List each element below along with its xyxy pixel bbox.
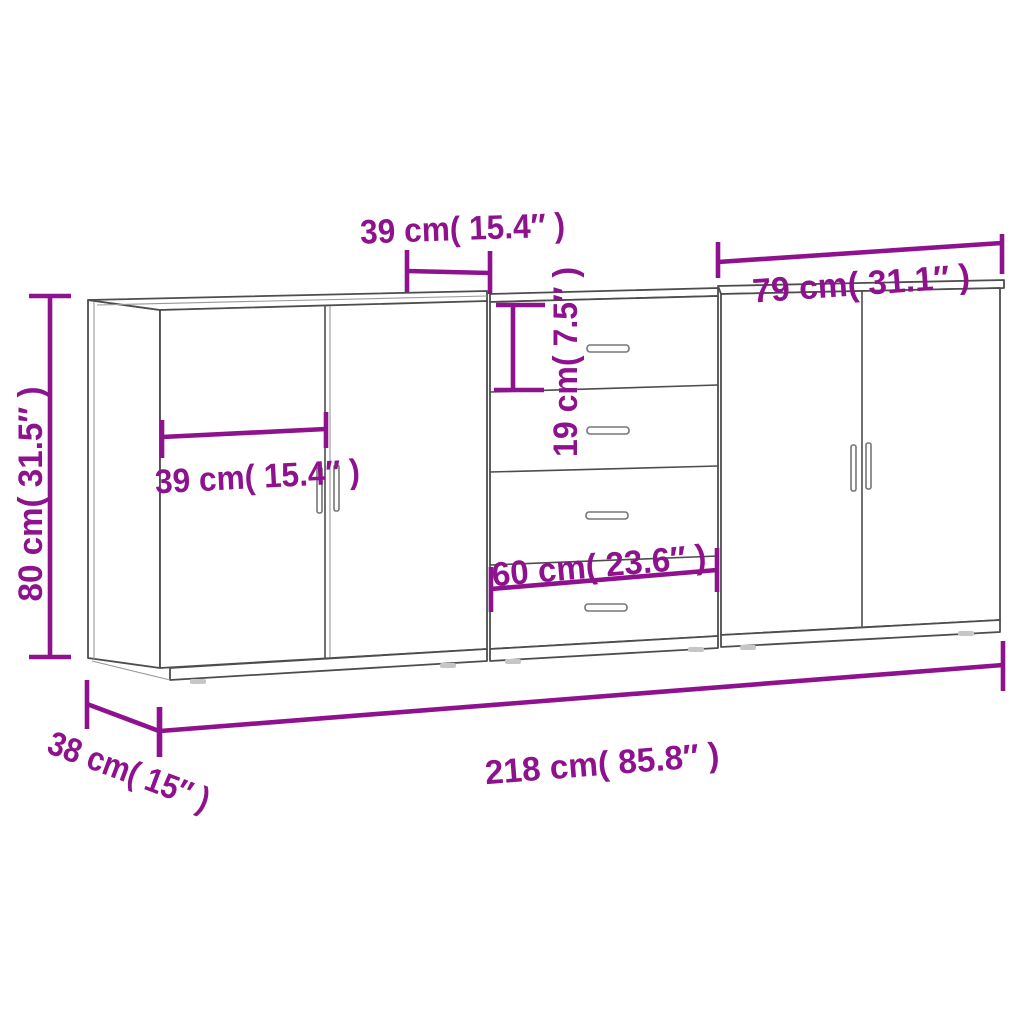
right-cabinet-front — [721, 288, 1000, 635]
dimension-label-door-width-top: 39 cm( 15.4″ ) — [360, 206, 566, 251]
middle-cabinet-foot-2 — [688, 647, 704, 652]
product-dimension-diagram: 39 cm( 15.4″ ) 79 cm( 31.1″ ) 80 cm( 31.… — [0, 0, 1024, 1024]
left-cabinet-foot-2 — [440, 663, 456, 668]
dimension-door-width-top: 39 cm( 15.4″ ) — [360, 206, 566, 294]
drawer-handle-3 — [586, 512, 628, 519]
middle-cabinet-foot-1 — [505, 659, 521, 664]
sideboard-diagram-canvas: 39 cm( 15.4″ ) 79 cm( 31.1″ ) 80 cm( 31.… — [0, 0, 1024, 1024]
right-cabinet — [718, 280, 1004, 650]
drawer-handle-4 — [585, 604, 627, 611]
middle-cabinet — [490, 288, 718, 664]
dimension-height: 80 cm( 31.5″ ) — [12, 296, 71, 657]
dimension-line — [160, 665, 1003, 731]
drawer-handle-1 — [587, 345, 629, 352]
dimension-line — [407, 271, 490, 273]
dimension-label-depth: 38 cm( 15″ ) — [43, 724, 216, 819]
dimension-line — [87, 704, 159, 731]
right-cabinet-foot-2 — [958, 631, 974, 636]
left-cabinet-foot-1 — [190, 679, 206, 684]
drawer-handle-2 — [587, 427, 629, 434]
dimension-label-drawer-height: 19 cm( 7.5″ ) — [547, 267, 585, 457]
dimension-depth: 38 cm( 15″ ) — [43, 680, 216, 819]
dimension-label-height: 80 cm( 31.5″ ) — [12, 387, 50, 602]
left-cabinet-side-panel — [88, 300, 160, 668]
dimension-label-total-width: 218 cm( 85.8″ ) — [484, 736, 721, 792]
right-cabinet-handle-left — [851, 445, 856, 491]
right-cabinet-foot-1 — [740, 645, 756, 650]
right-cabinet-handle-right — [866, 443, 871, 489]
